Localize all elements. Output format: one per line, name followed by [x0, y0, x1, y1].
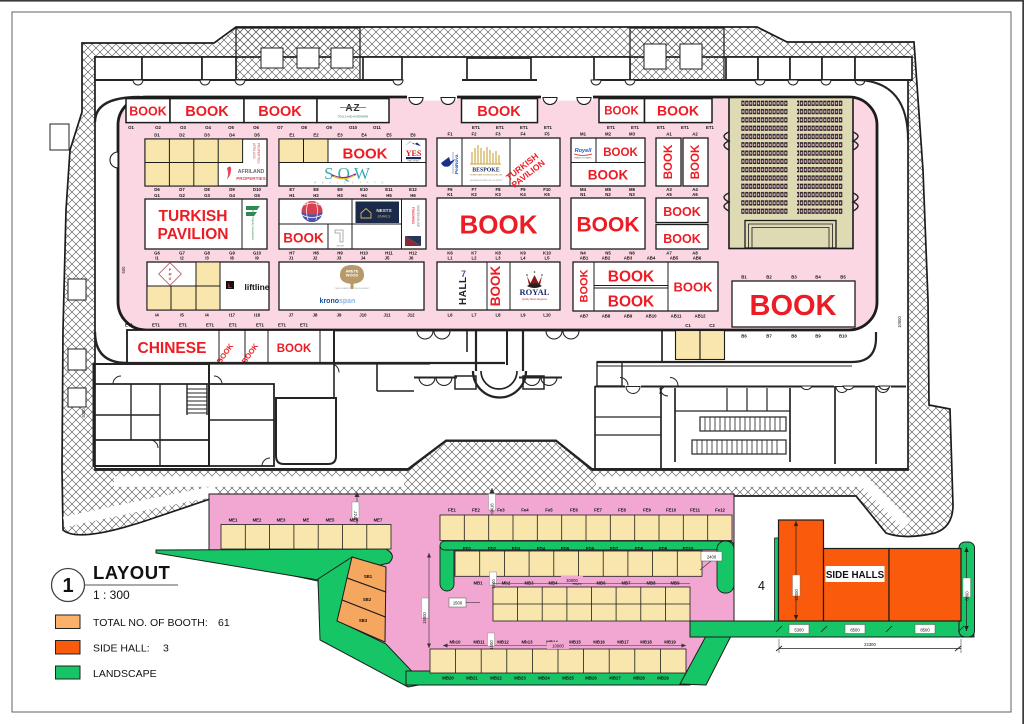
svg-text:B9: B9	[815, 334, 821, 339]
svg-text:MB17: MB17	[617, 640, 629, 645]
svg-text:15000: 15000	[422, 612, 427, 624]
svg-text:Fe5: Fe5	[545, 508, 553, 513]
svg-text:O1: O1	[128, 125, 134, 130]
svg-text:J1: J1	[289, 256, 294, 261]
svg-text:D8: D8	[204, 187, 210, 192]
svg-text:G: G	[169, 277, 172, 281]
svg-text:J8: J8	[313, 313, 318, 318]
svg-text:O7: O7	[277, 125, 283, 130]
svg-text:BOOK: BOOK	[603, 147, 638, 159]
svg-text:i9: i9	[255, 256, 259, 261]
svg-text:J7: J7	[289, 313, 294, 318]
svg-text:SB1: SB1	[364, 574, 373, 579]
svg-text:H1: H1	[289, 193, 295, 198]
svg-text:B5: B5	[840, 275, 846, 280]
svg-text:600: 600	[121, 266, 126, 274]
svg-text:ED4: ED4	[537, 546, 546, 551]
svg-text:G4: G4	[229, 193, 235, 198]
svg-text:krono: krono	[320, 298, 339, 305]
svg-text:liftline: liftline	[244, 282, 269, 292]
svg-text:ET1: ET1	[496, 125, 504, 130]
svg-text:4000: 4000	[81, 408, 86, 418]
svg-text:BOOK: BOOK	[608, 294, 655, 311]
svg-text:ET1: ET1	[520, 125, 528, 130]
svg-text:AB12: AB12	[695, 314, 707, 319]
svg-text:ED6: ED6	[586, 546, 595, 551]
svg-text:Mb10: Mb10	[450, 640, 462, 645]
svg-text:SB3: SB3	[359, 618, 368, 623]
svg-text:ED8: ED8	[635, 546, 644, 551]
svg-text:FE2: FE2	[472, 508, 480, 513]
svg-text:AB6: AB6	[693, 256, 702, 261]
svg-text:ED3: ED3	[512, 546, 521, 551]
svg-text:ET1: ET1	[681, 125, 689, 130]
svg-text:FE11: FE11	[690, 508, 701, 513]
svg-text:A6: A6	[692, 192, 698, 197]
svg-text:LAYOUT: LAYOUT	[93, 562, 171, 583]
svg-text:ED5: ED5	[561, 546, 570, 551]
svg-text:ED7: ED7	[610, 546, 619, 551]
svg-text:FE1: FE1	[448, 508, 456, 513]
svg-text:A2: A2	[692, 132, 698, 137]
svg-text:MB22: MB22	[490, 676, 502, 681]
svg-text:M: M	[169, 273, 172, 277]
svg-text:E10: E10	[360, 187, 368, 192]
svg-text:E4: E4	[361, 133, 367, 138]
svg-text:D7: D7	[179, 187, 185, 192]
svg-text:i8: i8	[230, 256, 234, 261]
svg-text:MB27: MB27	[609, 676, 621, 681]
svg-text:ET1: ET1	[657, 125, 665, 130]
svg-text:ET1: ET1	[256, 323, 264, 328]
svg-text:61: 61	[218, 617, 230, 629]
svg-text:F1: F1	[447, 132, 453, 137]
svg-text:8500: 8500	[850, 628, 860, 633]
svg-text:F5: F5	[544, 132, 550, 137]
svg-text:BOOK: BOOK	[577, 214, 640, 237]
svg-text:NESTS: NESTS	[376, 208, 391, 213]
svg-text:Fe3: Fe3	[497, 508, 505, 513]
svg-text:BOOK: BOOK	[343, 146, 388, 163]
svg-text:D9: D9	[229, 187, 235, 192]
svg-text:BOOK: BOOK	[588, 168, 629, 183]
svg-text:Mb2: Mb2	[502, 581, 511, 586]
svg-text:ME3: ME3	[277, 518, 286, 523]
svg-text:R E A L E S T A T E: R E A L E S T A T E	[314, 181, 386, 185]
svg-text:BESPOKE: BESPOKE	[472, 168, 500, 174]
svg-text:7: 7	[461, 269, 466, 279]
svg-text:E9: E9	[337, 187, 343, 192]
svg-text:FE9: FE9	[643, 508, 651, 513]
svg-text:AZ: AZ	[345, 103, 360, 114]
svg-text:ED1: ED1	[463, 546, 472, 551]
svg-text:E3: E3	[337, 133, 343, 138]
svg-text:10000: 10000	[552, 644, 564, 649]
svg-text:O8: O8	[301, 125, 307, 130]
svg-text:AB5: AB5	[670, 256, 679, 261]
svg-text:i3: i3	[205, 256, 209, 261]
svg-text:SIDE HALLS: SIDE HALLS	[826, 570, 885, 581]
svg-text:O11: O11	[373, 125, 381, 130]
svg-text:BOOK: BOOK	[258, 104, 302, 120]
svg-text:MB20: MB20	[442, 676, 454, 681]
svg-text:BOOK: BOOK	[663, 232, 701, 246]
svg-text:MB6: MB6	[596, 581, 606, 586]
svg-text:D4: D4	[229, 133, 235, 138]
svg-text:BOOK: BOOK	[277, 343, 312, 355]
svg-text:L: L	[228, 284, 232, 290]
svg-text:ED2: ED2	[488, 546, 497, 551]
svg-text:AB9: AB9	[624, 314, 633, 319]
svg-text:3747: 3747	[353, 511, 358, 521]
svg-text:ET1: ET1	[300, 323, 308, 328]
svg-text:PAVILION: PAVILION	[158, 226, 229, 243]
svg-text:SIDE HALL:: SIDE HALL:	[93, 643, 150, 655]
svg-text:WAREHOUSE: WAREHOUSE	[416, 205, 420, 228]
svg-text:K5: K5	[544, 192, 550, 197]
svg-text:FE6: FE6	[570, 508, 578, 513]
svg-text:MB9: MB9	[670, 581, 680, 586]
svg-text:G1: G1	[154, 193, 160, 198]
svg-text:MB16: MB16	[593, 640, 605, 645]
svg-text:B4: B4	[815, 275, 821, 280]
svg-text:H6: H6	[410, 193, 416, 198]
svg-text:E11: E11	[385, 187, 393, 192]
svg-text:3: 3	[163, 643, 169, 655]
svg-text:BUILDING A PORTFOLIO OF TRUST: BUILDING A PORTFOLIO OF TRUST	[470, 179, 503, 182]
svg-text:B2: B2	[766, 275, 772, 280]
svg-text:MB8: MB8	[646, 581, 656, 586]
svg-text:M3: M3	[629, 132, 636, 137]
svg-text:Fe4: Fe4	[521, 508, 529, 513]
svg-text:AB8: AB8	[602, 314, 611, 319]
svg-text:i4: i4	[155, 313, 159, 318]
svg-text:REAL ESTATE: REAL ESTATE	[408, 160, 421, 163]
svg-text:TOOLS AND HARDWARE: TOOLS AND HARDWARE	[338, 115, 369, 119]
svg-text:D10: D10	[253, 187, 261, 192]
svg-text:span: span	[339, 298, 355, 305]
svg-text:AFRILAND: AFRILAND	[238, 169, 265, 175]
svg-text:BOOK: BOOK	[579, 269, 591, 302]
svg-text:30000: 30000	[566, 578, 578, 583]
svg-text:MB1: MB1	[473, 581, 483, 586]
svg-text:FE7: FE7	[594, 508, 602, 513]
svg-text:E2: E2	[313, 133, 319, 138]
svg-text:B8: B8	[791, 334, 797, 339]
svg-text:G5: G5	[254, 193, 260, 198]
svg-text:MB11: MB11	[473, 640, 485, 645]
svg-text:BOOK: BOOK	[604, 106, 639, 118]
svg-text:MB28: MB28	[633, 676, 645, 681]
svg-text:ME2: ME2	[253, 518, 262, 523]
svg-text:i4: i4	[205, 313, 209, 318]
svg-text:BOOK: BOOK	[657, 103, 699, 119]
svg-text:H3: H3	[337, 193, 343, 198]
svg-text:K4: K4	[520, 192, 526, 197]
svg-text:AB2: AB2	[602, 256, 611, 261]
svg-text:10500: 10500	[897, 316, 902, 328]
svg-text:G2: G2	[179, 193, 185, 198]
svg-text:N3: N3	[629, 192, 635, 197]
svg-text:BOOK: BOOK	[460, 210, 538, 240]
svg-text:AB1: AB1	[580, 256, 589, 261]
svg-text:O9: O9	[326, 125, 332, 130]
svg-text:BOOK: BOOK	[674, 280, 714, 295]
svg-text:MB12: MB12	[497, 640, 509, 645]
svg-text:FE8: FE8	[618, 508, 626, 513]
svg-text:C1: C1	[685, 323, 691, 328]
svg-text:Mb13: Mb13	[522, 640, 534, 645]
svg-text:BOOK: BOOK	[608, 269, 655, 286]
svg-text:B10: B10	[839, 334, 847, 339]
svg-text:L10: L10	[543, 313, 551, 318]
svg-text:ET1: ET1	[152, 323, 160, 328]
svg-text:CHINESE: CHINESE	[138, 340, 207, 357]
svg-text:SMART IN TRAVEL: SMART IN TRAVEL	[574, 157, 593, 160]
svg-text:1 : 300: 1 : 300	[93, 588, 130, 602]
svg-text:ET1: ET1	[607, 125, 615, 130]
svg-text:ET1: ET1	[278, 323, 286, 328]
svg-text:K2: K2	[471, 192, 477, 197]
svg-text:1500: 1500	[489, 640, 494, 650]
svg-text:WOOD: WOOD	[346, 274, 358, 278]
svg-text:MB24: MB24	[538, 676, 550, 681]
svg-text:E1: E1	[289, 133, 295, 138]
svg-text:BOOK: BOOK	[750, 290, 837, 322]
svg-text:MB15: MB15	[569, 640, 581, 645]
svg-text:J9: J9	[337, 313, 342, 318]
svg-text:MB23: MB23	[514, 676, 526, 681]
svg-text:F3: F3	[495, 132, 501, 137]
svg-text:ET1: ET1	[125, 323, 133, 328]
svg-text:D6: D6	[154, 187, 160, 192]
svg-text:ET1: ET1	[544, 125, 552, 130]
svg-text:8500: 8500	[920, 628, 930, 633]
svg-text:TOTAL NO. OF BOOTH:: TOTAL NO. OF BOOTH:	[93, 617, 208, 629]
svg-text:MB26: MB26	[585, 676, 597, 681]
svg-text:K3: K3	[495, 192, 501, 197]
svg-text:J2: J2	[313, 256, 318, 261]
svg-text:L6: L6	[447, 313, 453, 318]
svg-text:i17: i17	[229, 313, 236, 318]
svg-text:ED10: ED10	[683, 546, 694, 551]
svg-text:Maya Property Development: Maya Property Development	[251, 210, 254, 241]
svg-text:L9: L9	[520, 313, 526, 318]
svg-text:E6: E6	[410, 133, 416, 138]
svg-text:BOOK: BOOK	[477, 104, 521, 120]
svg-text:L2: L2	[471, 256, 477, 261]
svg-text:MB4: MB4	[548, 581, 558, 586]
svg-text:Fe12: Fe12	[715, 508, 725, 513]
svg-text:4: 4	[758, 579, 765, 593]
svg-text:J11: J11	[384, 313, 392, 318]
svg-text:F4: F4	[520, 132, 526, 137]
svg-text:A1: A1	[666, 132, 672, 137]
svg-text:Quality Meets Elegance: Quality Meets Elegance	[522, 298, 548, 301]
svg-text:L3: L3	[495, 256, 501, 261]
svg-text:FURNITURE LIGHTING DECOR: FURNITURE LIGHTING DECOR	[470, 175, 503, 177]
svg-text:D2: D2	[179, 133, 185, 138]
svg-text:A5: A5	[666, 192, 672, 197]
svg-text:H4: H4	[361, 193, 367, 198]
svg-text:E5: E5	[386, 133, 392, 138]
svg-text:ET1: ET1	[206, 323, 214, 328]
svg-text:J3: J3	[337, 256, 342, 261]
svg-text:BOOK: BOOK	[129, 105, 167, 119]
svg-text:LANDSCAPE: LANDSCAPE	[93, 668, 157, 680]
svg-text:E12: E12	[409, 187, 417, 192]
svg-text:SB2: SB2	[363, 597, 372, 602]
svg-text:ET1: ET1	[229, 323, 237, 328]
svg-text:G3: G3	[204, 193, 210, 198]
svg-text:AB4: AB4	[647, 256, 656, 261]
svg-text:B6: B6	[741, 334, 747, 339]
svg-text:L4: L4	[520, 256, 526, 261]
svg-text:J5: J5	[385, 256, 390, 261]
svg-text:ME: ME	[303, 518, 310, 523]
svg-text:5300: 5300	[794, 628, 804, 633]
svg-text:BOOK: BOOK	[283, 231, 324, 246]
svg-text:AB3: AB3	[624, 256, 633, 261]
svg-text:O4: O4	[205, 125, 211, 130]
svg-text:L7: L7	[471, 313, 477, 318]
svg-text:L5: L5	[544, 256, 550, 261]
svg-text:BOOK: BOOK	[663, 144, 675, 179]
svg-text:FE10: FE10	[666, 508, 677, 513]
svg-text:BOOK: BOOK	[663, 205, 701, 219]
svg-text:E7: E7	[289, 187, 295, 192]
svg-text:AB10: AB10	[646, 314, 658, 319]
svg-text:J12: J12	[407, 313, 415, 318]
svg-text:ME1: ME1	[229, 518, 238, 523]
svg-text:ET1: ET1	[179, 323, 187, 328]
svg-text:2400: 2400	[707, 555, 717, 560]
svg-text:B3: B3	[791, 275, 797, 280]
svg-text:MB19: MB19	[664, 640, 676, 645]
svg-text:ROYAL: ROYAL	[520, 287, 550, 297]
svg-text:O5: O5	[228, 125, 234, 130]
svg-text:THE ELEMENT OF THE ELEMENT: THE ELEMENT OF THE ELEMENT	[335, 288, 370, 290]
svg-text:J6: J6	[409, 256, 414, 261]
svg-text:C2: C2	[709, 323, 715, 328]
svg-text:AB11: AB11	[671, 314, 682, 319]
svg-text:i1: i1	[155, 256, 159, 261]
svg-text:i2: i2	[180, 256, 184, 261]
svg-text:YBTBM: YBTBM	[336, 246, 344, 248]
svg-text:ET1: ET1	[472, 125, 480, 130]
svg-text:N2: N2	[605, 192, 611, 197]
svg-text:MB7: MB7	[621, 581, 631, 586]
svg-text:BOOK: BOOK	[690, 144, 702, 179]
svg-text:8800: 8800	[965, 591, 970, 601]
svg-text:J4: J4	[361, 256, 366, 261]
svg-text:MB25: MB25	[562, 676, 574, 681]
svg-text:H2: H2	[313, 193, 319, 198]
svg-text:PROPERTIES: PROPERTIES	[236, 176, 266, 181]
svg-text:2416: 2416	[490, 503, 495, 513]
svg-text:12000: 12000	[794, 589, 799, 601]
svg-text:ET1: ET1	[631, 125, 639, 130]
svg-text:B7: B7	[766, 334, 772, 339]
svg-text:D3: D3	[204, 133, 210, 138]
svg-text:N1: N1	[580, 192, 586, 197]
svg-text:E8: E8	[313, 187, 319, 192]
svg-text:MB18: MB18	[640, 640, 652, 645]
svg-text:FINISHING: FINISHING	[411, 207, 415, 225]
svg-text:BOOK: BOOK	[185, 104, 229, 120]
svg-text:F2: F2	[471, 132, 477, 137]
svg-text:i18: i18	[254, 313, 261, 318]
svg-text:TURKISH: TURKISH	[159, 208, 228, 225]
svg-text:J10: J10	[359, 313, 367, 318]
svg-text:D1: D1	[154, 133, 160, 138]
svg-text:O6: O6	[253, 125, 259, 130]
svg-text:i5: i5	[180, 313, 184, 318]
svg-text:BOOK: BOOK	[488, 265, 503, 306]
svg-text:ME7: ME7	[374, 518, 383, 523]
svg-text:&NAILS: &NAILS	[378, 215, 391, 219]
svg-text:PROPERTIES: PROPERTIES	[257, 143, 261, 164]
svg-text:MB21: MB21	[466, 676, 478, 681]
svg-text:AB7: AB7	[580, 314, 589, 319]
svg-text:1: 1	[62, 575, 73, 597]
svg-text:O3: O3	[180, 125, 186, 130]
svg-text:YES: YES	[406, 149, 422, 158]
svg-text:PeaNova: PeaNova	[454, 154, 459, 174]
svg-text:M1: M1	[580, 132, 587, 137]
svg-text:L1: L1	[447, 256, 453, 261]
svg-text:ED9: ED9	[659, 546, 668, 551]
svg-text:ME5: ME5	[326, 518, 335, 523]
svg-text:AFRILAND: AFRILAND	[252, 143, 256, 159]
svg-text:MB3: MB3	[524, 581, 534, 586]
svg-text:O2: O2	[155, 125, 161, 130]
svg-text:1500: 1500	[453, 601, 463, 606]
svg-text:22300: 22300	[864, 642, 876, 647]
svg-text:Royell: Royell	[575, 148, 592, 154]
svg-text:MB29: MB29	[657, 676, 669, 681]
svg-text:M2: M2	[605, 132, 612, 137]
svg-text:HALL: HALL	[458, 276, 469, 305]
svg-text:ET1: ET1	[706, 125, 714, 130]
svg-text:K1: K1	[447, 192, 453, 197]
svg-text:L8: L8	[495, 313, 501, 318]
svg-text:O10: O10	[349, 125, 358, 130]
svg-text:D5: D5	[254, 133, 260, 138]
svg-text:H5: H5	[386, 193, 392, 198]
svg-text:B1: B1	[741, 275, 747, 280]
